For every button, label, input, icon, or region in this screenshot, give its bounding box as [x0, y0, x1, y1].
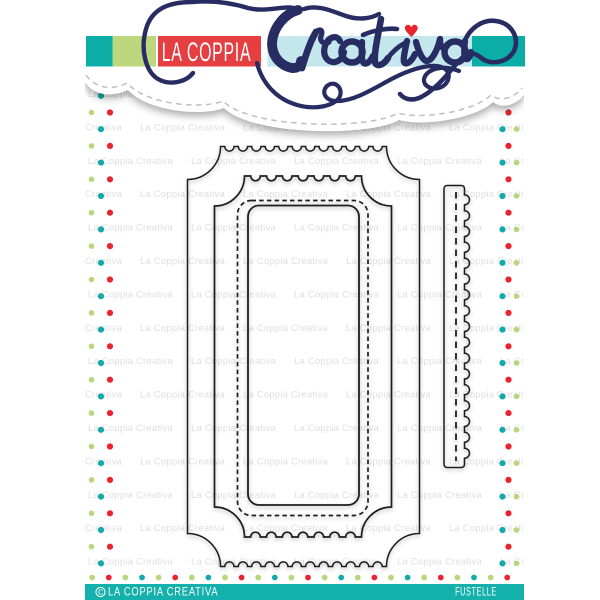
svg-text:La Coppia Creativa: La Coppia Creativa	[140, 323, 225, 334]
svg-text:La Coppia Creativa: La Coppia Creativa	[346, 523, 431, 534]
svg-text:La Coppia Creativa: La Coppia Creativa	[449, 456, 534, 467]
svg-text:La Coppia Creativa: La Coppia Creativa	[191, 423, 276, 434]
svg-text:La Coppia Creativa: La Coppia Creativa	[500, 223, 585, 234]
svg-text:La Coppia Creativa: La Coppia Creativa	[294, 356, 379, 367]
svg-text:La Coppia Creativa: La Coppia Creativa	[346, 189, 431, 200]
svg-text:La Coppia Creativa: La Coppia Creativa	[191, 356, 276, 367]
svg-text:La Coppia Creativa: La Coppia Creativa	[294, 156, 379, 167]
svg-text:La Coppia Creativa: La Coppia Creativa	[500, 289, 585, 300]
svg-text:La Coppia Creativa: La Coppia Creativa	[500, 423, 585, 434]
svg-text:La Coppia Creativa: La Coppia Creativa	[140, 456, 225, 467]
svg-text:La Coppia Creativa: La Coppia Creativa	[449, 323, 534, 334]
svg-text:La Coppia Creativa: La Coppia Creativa	[397, 423, 482, 434]
svg-text:La Coppia Creativa: La Coppia Creativa	[500, 356, 585, 367]
svg-text:La Coppia Creativa: La Coppia Creativa	[243, 456, 328, 467]
svg-text:La Coppia Creativa: La Coppia Creativa	[243, 189, 328, 200]
svg-text:La Coppia Creativa: La Coppia Creativa	[37, 122, 122, 133]
svg-text:La Coppia Creativa: La Coppia Creativa	[37, 523, 122, 534]
svg-text:La Coppia Creativa: La Coppia Creativa	[449, 390, 534, 401]
svg-text:La Coppia Creativa: La Coppia Creativa	[140, 390, 225, 401]
svg-text:La Coppia Creativa: La Coppia Creativa	[449, 189, 534, 200]
svg-text:La Coppia Creativa: La Coppia Creativa	[500, 557, 585, 568]
svg-text:C: C	[98, 588, 104, 597]
svg-text:La Coppia Creativa: La Coppia Creativa	[37, 323, 122, 334]
svg-text:La Coppia Creativa: La Coppia Creativa	[191, 490, 276, 501]
svg-text:La Coppia Creativa: La Coppia Creativa	[294, 223, 379, 234]
svg-text:La Coppia Creativa: La Coppia Creativa	[243, 390, 328, 401]
svg-text:La Coppia Creativa: La Coppia Creativa	[449, 523, 534, 534]
svg-text:La Coppia Creativa: La Coppia Creativa	[37, 456, 122, 467]
svg-text:La Coppia Creativa: La Coppia Creativa	[191, 289, 276, 300]
svg-text:La Coppia Creativa: La Coppia Creativa	[37, 189, 122, 200]
svg-text:La Coppia Creativa: La Coppia Creativa	[37, 390, 122, 401]
svg-text:La Coppia Creativa: La Coppia Creativa	[140, 523, 225, 534]
svg-text:La Coppia Creativa: La Coppia Creativa	[294, 490, 379, 501]
svg-text:La Coppia Creativa: La Coppia Creativa	[140, 122, 225, 133]
svg-text:La Coppia Creativa: La Coppia Creativa	[449, 122, 534, 133]
svg-text:La Coppia Creativa: La Coppia Creativa	[397, 156, 482, 167]
svg-text:LA COPPIA CREATIVA: LA COPPIA CREATIVA	[108, 585, 218, 598]
svg-text:La Coppia Creativa: La Coppia Creativa	[140, 256, 225, 267]
svg-text:La Coppia Creativa: La Coppia Creativa	[397, 557, 482, 568]
svg-text:La Coppia Creativa: La Coppia Creativa	[243, 323, 328, 334]
svg-text:La Coppia Creativa: La Coppia Creativa	[294, 289, 379, 300]
svg-text:La Coppia Creativa: La Coppia Creativa	[191, 156, 276, 167]
svg-text:La Coppia Creativa: La Coppia Creativa	[500, 490, 585, 501]
svg-text:La Coppia Creativa: La Coppia Creativa	[294, 423, 379, 434]
svg-text:La Coppia Creativa: La Coppia Creativa	[243, 256, 328, 267]
svg-text:La Coppia Creativa: La Coppia Creativa	[449, 256, 534, 267]
svg-text:La Coppia Creativa: La Coppia Creativa	[140, 189, 225, 200]
svg-text:La Coppia Creativa: La Coppia Creativa	[191, 223, 276, 234]
svg-text:FUSTELLE: FUSTELLE	[455, 586, 497, 599]
svg-text:LA COPPIA: LA COPPIA	[162, 37, 252, 67]
svg-text:La Coppia Creativa: La Coppia Creativa	[37, 256, 122, 267]
svg-text:La Coppia Creativa: La Coppia Creativa	[397, 490, 482, 501]
svg-text:La Coppia Creativa: La Coppia Creativa	[500, 156, 585, 167]
